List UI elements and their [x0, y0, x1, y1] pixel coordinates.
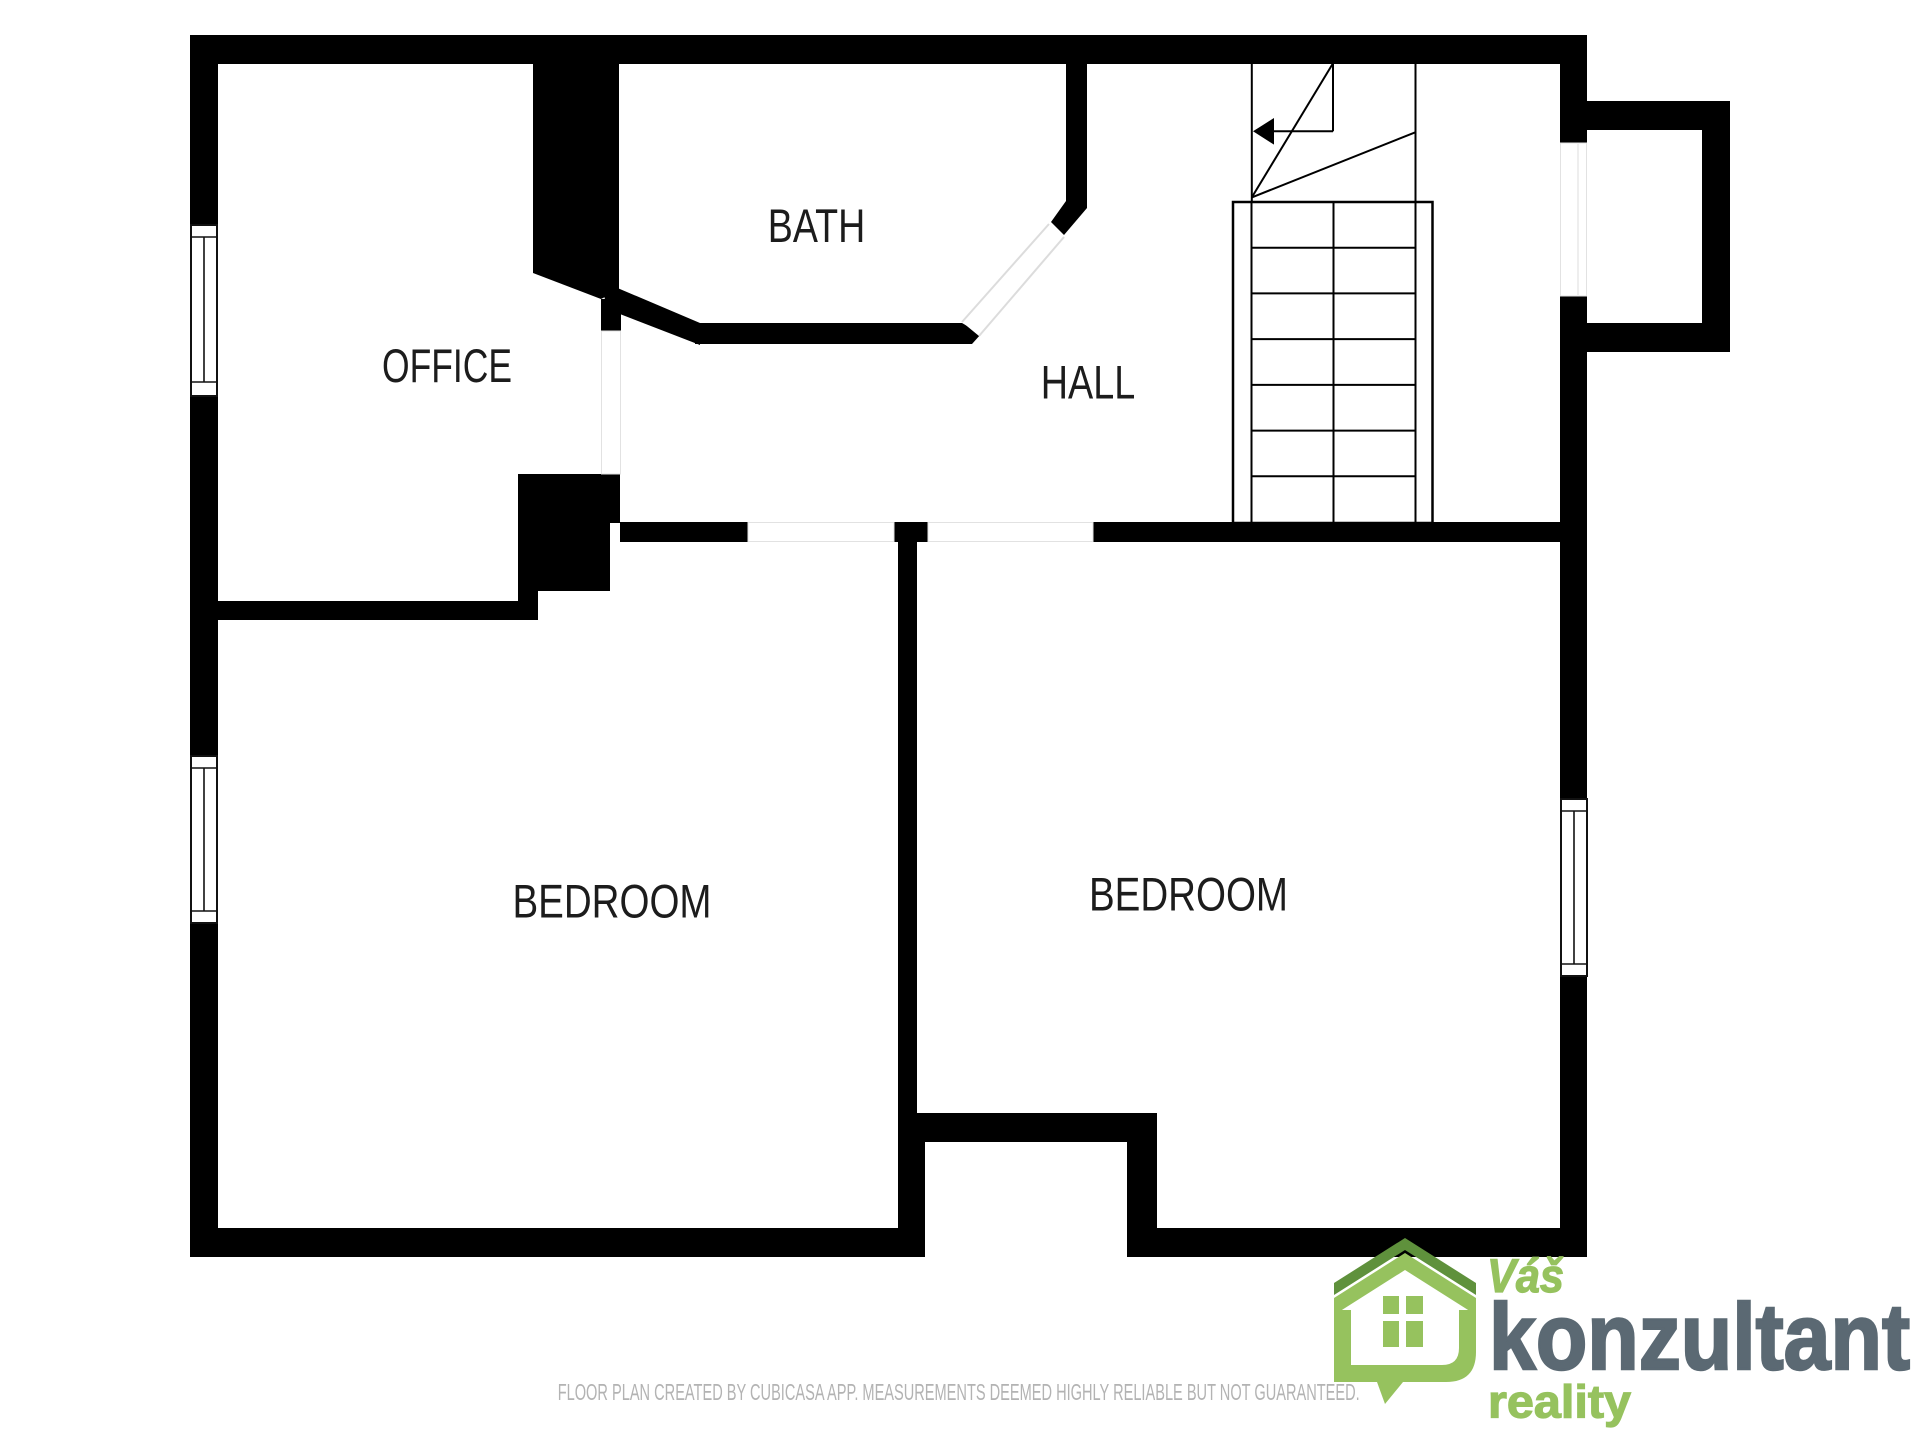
svg-text:BEDROOM: BEDROOM: [513, 875, 712, 928]
svg-text:OFFICE: OFFICE: [382, 339, 512, 392]
svg-text:BEDROOM: BEDROOM: [1089, 868, 1288, 921]
svg-text:HALL: HALL: [1041, 356, 1136, 409]
svg-text:FLOOR PLAN CREATED BY CUBICASA: FLOOR PLAN CREATED BY CUBICASA APP. MEAS…: [558, 1379, 1360, 1405]
svg-text:reality: reality: [1488, 1376, 1631, 1428]
svg-text:konzultant: konzultant: [1489, 1284, 1910, 1389]
svg-text:BATH: BATH: [768, 199, 866, 252]
